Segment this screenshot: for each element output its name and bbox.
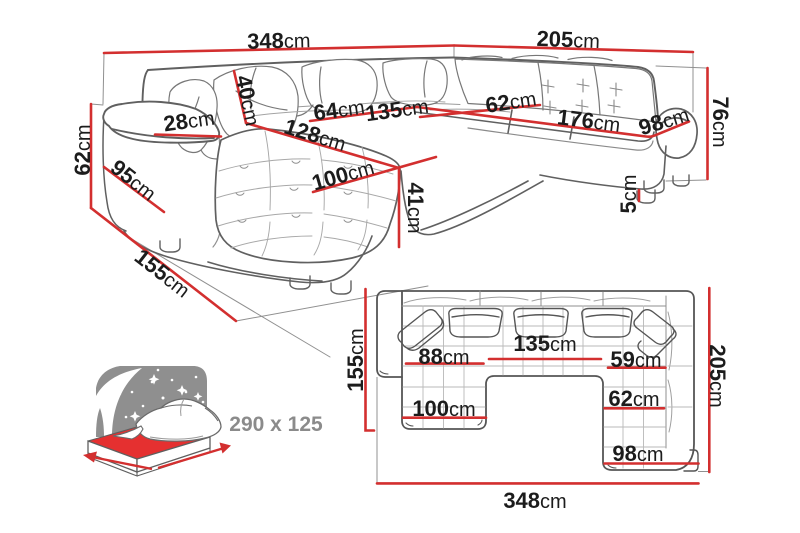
svg-text:135cm: 135cm — [513, 331, 576, 356]
svg-text:98cm: 98cm — [612, 441, 663, 466]
svg-text:155cm: 155cm — [343, 328, 368, 391]
svg-text:76cm: 76cm — [708, 96, 733, 147]
svg-text:41cm: 41cm — [403, 182, 428, 233]
svg-text:5cm: 5cm — [616, 175, 641, 214]
svg-text:88cm: 88cm — [418, 344, 469, 369]
svg-text:205cm: 205cm — [536, 26, 600, 53]
svg-text:348cm: 348cm — [503, 488, 566, 513]
svg-text:100cm: 100cm — [412, 396, 475, 421]
svg-text:348cm: 348cm — [247, 27, 311, 54]
svg-text:205cm: 205cm — [705, 344, 730, 407]
svg-text:290 x 125: 290 x 125 — [229, 413, 323, 436]
svg-text:62cm: 62cm — [70, 124, 95, 175]
svg-text:62cm: 62cm — [608, 386, 659, 411]
svg-text:59cm: 59cm — [610, 347, 661, 372]
